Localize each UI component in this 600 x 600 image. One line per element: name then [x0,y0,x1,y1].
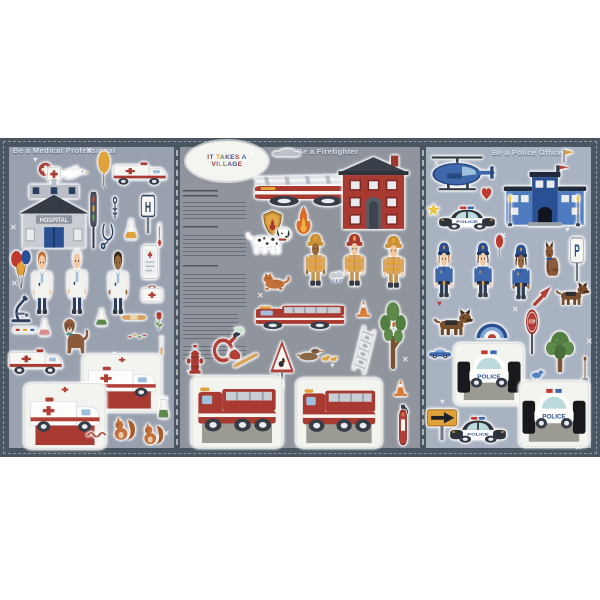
traffic-cone-2-icon [391,378,410,398]
blue-car-icon [428,344,452,362]
fine-print-paragraph [183,235,246,259]
svg-text:POLICE: POLICE [456,220,478,223]
police-panel-title: Be a Police Officer [492,148,566,157]
logo-text-line1: IT TAKES A [207,154,247,161]
panel-separator-2 [422,150,424,445]
dalmatian-icon [246,220,294,262]
bandage-icon [121,311,147,324]
lamppost-1-icon [504,194,516,228]
worm-icon [86,426,110,441]
police-car-sheet-1: POLICE [454,343,524,405]
parking-sign-icon: P [566,236,588,282]
doctor-3 [102,250,134,316]
heart-icon [480,186,493,201]
heart-sparkle-icon: ♥ [250,150,255,158]
rainbow-icon [475,310,509,342]
axe-icon [226,344,264,376]
svg-text:POLICE: POLICE [542,414,565,421]
stop-sign-icon: STOP [521,309,543,355]
medical-chart-icon [138,244,162,280]
police-dog-sitting-icon [539,238,565,280]
caduceus-icon [107,196,123,222]
ambulance-side-icon [8,340,65,382]
fabric-panel-product-image: Be a Medical Professional Be a Firefight… [0,0,600,600]
police-officer-2 [468,239,498,299]
svg-text:H: H [145,199,151,216]
flower-icon [151,309,167,333]
fine-print-paragraph [183,202,246,220]
fire-truck-icon [254,298,348,336]
german-shepherd-icon [434,308,476,342]
svg-text:P: P [574,241,580,260]
flask-pink-icon [36,318,53,338]
squirrel-2-icon [140,420,167,448]
fine-print-heading [183,190,218,198]
flask-green-icon [93,308,110,328]
fire-engine-sheet-1 [191,376,283,448]
police-car-sheet-2: POLICE [519,381,589,447]
doctor-2 [61,248,93,316]
pill-strip-icon [12,324,38,336]
rain-cloud-icon [328,270,346,286]
x-sparkle-icon: ✕ [512,306,519,314]
traffic-cone-1-icon [354,298,373,319]
cat-icon [260,268,294,294]
svg-text:HOSPITAL: HOSPITAL [40,218,69,224]
flask-yellow-icon [122,218,140,242]
bird-icon [529,366,547,382]
heart-sparkle-icon: ♥ [437,300,442,308]
fire-extinguisher-icon [393,403,413,448]
fine-print-heading [183,226,218,231]
cloud-icon [270,146,302,159]
police-car-bottom-icon: POLICE [449,414,507,450]
ambulance-top-icon [112,154,169,192]
fire-hydrant-icon [183,343,207,375]
firefighter-3 [376,233,411,290]
police-car-top-icon: POLICE [438,204,496,236]
stethoscope-icon [97,222,119,252]
fine-print-heading [183,265,218,270]
red-arrow-icon [529,283,555,309]
police-dog-running-icon [556,281,592,311]
microscope-icon [7,294,35,324]
logo-text-line2: VILLAGE [211,161,242,168]
beaker-icon [155,396,172,420]
svg-text:STOP: STOP [529,319,536,325]
hospital-building-icon: HOSPITAL [13,166,95,251]
sprinkles-icon [126,331,148,342]
fire-station-icon [337,154,410,232]
fire-engine-sheet-2 [296,378,382,448]
panel-separator-1 [176,150,178,445]
ladder-icon [346,326,382,374]
x-sparkle-icon: ✕ [586,338,593,346]
first-aid-kit-icon [140,284,164,304]
fine-print-paragraph [183,274,246,308]
squirrel-1-icon [110,414,139,444]
pennant-flag-icon [559,148,576,164]
duck-family-icon [296,344,338,368]
svg-text:POLICE: POLICE [467,433,489,437]
lamppost-2-icon [572,194,584,228]
police-officer-1 [429,239,459,299]
svg-text:POLICE: POLICE [477,375,500,381]
